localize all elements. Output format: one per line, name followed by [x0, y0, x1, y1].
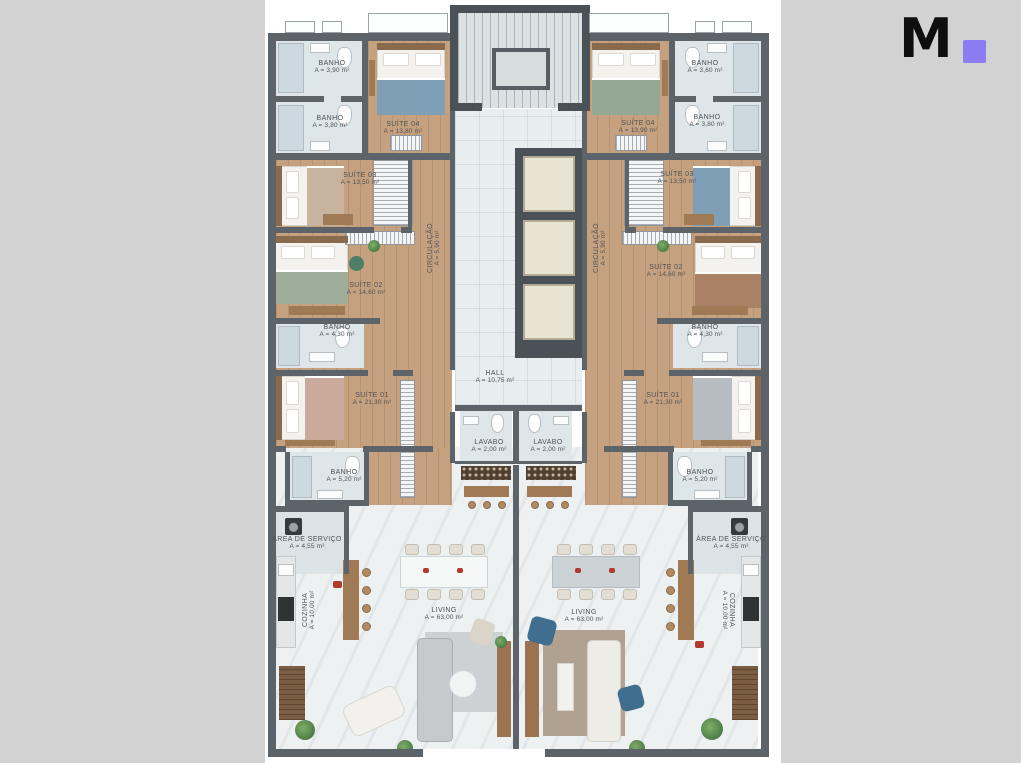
room-label-banho-1-right: BANHOA = 3,60 m²	[687, 60, 722, 74]
room-name: SUÍTE 02	[647, 264, 686, 271]
page-background: { "page": { "background": "#d2d2d2", "sh…	[0, 0, 1021, 763]
room-area: A = 3,80 m²	[689, 121, 724, 128]
brand-letter: M	[899, 12, 951, 66]
room-area: A = 4,55 m²	[272, 543, 342, 550]
room-name: SUÍTE 03	[341, 172, 380, 179]
room-name: LAVABO	[530, 439, 565, 446]
room-label-suite-02-right: SUÍTE 02A = 14,60 m²	[647, 264, 686, 278]
room-label-banho-3-left: BANHOA = 4,30 m²	[319, 324, 354, 338]
room-label-circulacao-left: CIRCULAÇÃOA = 5,90 m²	[427, 223, 441, 273]
room-label-banho-1-left: BANHOA = 3,90 m²	[314, 60, 349, 74]
room-area: A = 4,55 m²	[696, 543, 766, 550]
room-label-area-servico-right: ÁREA DE SERVIÇOA = 4,55 m²	[696, 536, 766, 550]
room-area: A = 13,80 m²	[384, 128, 423, 135]
room-label-banho-4-left: BANHOA = 5,20 m²	[326, 469, 361, 483]
room-label-cozinha-right: COZINHAA = 10,00 m²	[721, 591, 735, 630]
room-label-suite-01-left: SUÍTE 01A = 21,30 m²	[353, 392, 392, 406]
room-area: A = 10,75 m²	[476, 377, 515, 384]
room-label-suite-02-left: SUÍTE 02A = 14,60 m²	[347, 282, 386, 296]
room-name: SUÍTE 04	[619, 120, 658, 127]
room-name: COZINHA	[302, 591, 309, 630]
room-name: COZINHA	[728, 591, 735, 630]
brand-logo: M	[899, 12, 1009, 76]
room-label-lavabo-left: LAVABOA = 2,00 m²	[471, 439, 506, 453]
room-area: A = 5,20 m²	[682, 476, 717, 483]
room-labels-layer: BANHOA = 3,90 m²BANHOA = 3,80 m²SUÍTE 04…	[265, 0, 781, 763]
room-area: A = 2,00 m²	[471, 446, 506, 453]
room-name: BANHO	[314, 60, 349, 67]
room-name: BANHO	[312, 115, 347, 122]
room-label-suite-04-right: SUÍTE 04A = 13,90 m²	[619, 120, 658, 134]
room-label-living-left: LIVINGA = 63,00 m²	[425, 607, 464, 621]
room-name: BANHO	[319, 324, 354, 331]
room-name: BANHO	[689, 114, 724, 121]
room-area: A = 10,00 m²	[721, 591, 728, 630]
room-label-living-right: LIVINGA = 63,00 m²	[565, 609, 604, 623]
room-label-banho-2-right: BANHOA = 3,80 m²	[689, 114, 724, 128]
room-name: BANHO	[682, 469, 717, 476]
room-name: HALL	[476, 370, 515, 377]
room-area: A = 63,00 m²	[425, 614, 464, 621]
room-area: A = 10,00 m²	[309, 591, 316, 630]
room-area: A = 5,90 m²	[600, 223, 607, 273]
room-area: A = 3,60 m²	[687, 67, 722, 74]
room-name: CIRCULAÇÃO	[427, 223, 434, 273]
room-name: SUÍTE 01	[644, 392, 683, 399]
room-area: A = 4,30 m²	[687, 331, 722, 338]
room-name: BANHO	[687, 60, 722, 67]
room-name: SUÍTE 01	[353, 392, 392, 399]
room-label-suite-04-left: SUÍTE 04A = 13,80 m²	[384, 121, 423, 135]
room-area: A = 21,30 m²	[353, 399, 392, 406]
room-label-suite-01-right: SUÍTE 01A = 21,30 m²	[644, 392, 683, 406]
room-area: A = 21,30 m²	[644, 399, 683, 406]
room-area: A = 13,50 m²	[341, 179, 380, 186]
room-label-suite-03-right: SUÍTE 03A = 13,50 m²	[658, 171, 697, 185]
room-label-circulacao-right: CIRCULAÇÃOA = 5,90 m²	[593, 223, 607, 273]
room-label-cozinha-left: COZINHAA = 10,00 m²	[302, 591, 316, 630]
room-name: CIRCULAÇÃO	[593, 223, 600, 273]
room-area: A = 13,90 m²	[619, 127, 658, 134]
room-name: ÁREA DE SERVIÇO	[272, 536, 342, 543]
brand-square-icon	[963, 40, 986, 63]
room-label-area-servico-left: ÁREA DE SERVIÇOA = 4,55 m²	[272, 536, 342, 550]
room-label-banho-4-right: BANHOA = 5,20 m²	[682, 469, 717, 483]
room-area: A = 63,00 m²	[565, 616, 604, 623]
room-label-suite-03-left: SUÍTE 03A = 13,50 m²	[341, 172, 380, 186]
room-area: A = 14,60 m²	[647, 271, 686, 278]
floorplan-sheet: BANHOA = 3,90 m²BANHOA = 3,80 m²SUÍTE 04…	[265, 0, 781, 763]
room-name: ÁREA DE SERVIÇO	[696, 536, 766, 543]
room-area: A = 2,00 m²	[530, 446, 565, 453]
room-area: A = 13,50 m²	[658, 178, 697, 185]
room-label-banho-2-left: BANHOA = 3,80 m²	[312, 115, 347, 129]
room-area: A = 5,20 m²	[326, 476, 361, 483]
room-name: LIVING	[425, 607, 464, 614]
room-name: LAVABO	[471, 439, 506, 446]
room-name: BANHO	[687, 324, 722, 331]
room-label-hall: HALLA = 10,75 m²	[476, 370, 515, 384]
room-name: LIVING	[565, 609, 604, 616]
room-area: A = 3,90 m²	[314, 67, 349, 74]
room-area: A = 3,80 m²	[312, 122, 347, 129]
room-name: BANHO	[326, 469, 361, 476]
room-name: SUÍTE 03	[658, 171, 697, 178]
room-name: SUÍTE 02	[347, 282, 386, 289]
room-name: SUÍTE 04	[384, 121, 423, 128]
room-label-banho-3-right: BANHOA = 4,30 m²	[687, 324, 722, 338]
room-area: A = 14,60 m²	[347, 289, 386, 296]
room-area: A = 4,30 m²	[319, 331, 354, 338]
room-area: A = 5,90 m²	[434, 223, 441, 273]
room-label-lavabo-right: LAVABOA = 2,00 m²	[530, 439, 565, 453]
